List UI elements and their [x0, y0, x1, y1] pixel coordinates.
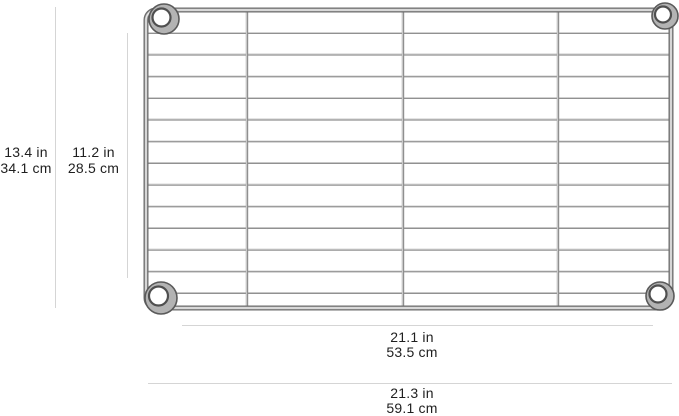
overall-height-label: 13.4 in 34.1 cm	[0, 144, 52, 176]
shelf-grid-wires	[148, 12, 669, 306]
inner-width-label: 21.1 in 53.5 cm	[332, 330, 492, 360]
inner-height-inches: 11.2 in	[60, 144, 127, 160]
inner-width-centimeters: 53.5 cm	[332, 345, 492, 360]
corner-collar-top-right	[652, 3, 678, 29]
corner-collar-bottom-left	[145, 282, 177, 314]
overall-height-centimeters: 34.1 cm	[0, 160, 52, 176]
corner-collar-bottom-right	[646, 282, 674, 310]
overall-width-centimeters: 59.1 cm	[332, 401, 492, 416]
overall-width-label: 21.3 in 59.1 cm	[332, 386, 492, 416]
inner-height-label: 11.2 in 28.5 cm	[60, 144, 127, 176]
inner-width-inches: 21.1 in	[332, 330, 492, 345]
product-dimension-diagram: 13.4 in 34.1 cm 11.2 in 28.5 cm 21.1 in …	[0, 0, 679, 416]
inner-height-centimeters: 28.5 cm	[60, 160, 127, 176]
overall-width-inches: 21.3 in	[332, 386, 492, 401]
corner-collar-top-left	[149, 4, 179, 34]
overall-height-inches: 13.4 in	[0, 144, 52, 160]
